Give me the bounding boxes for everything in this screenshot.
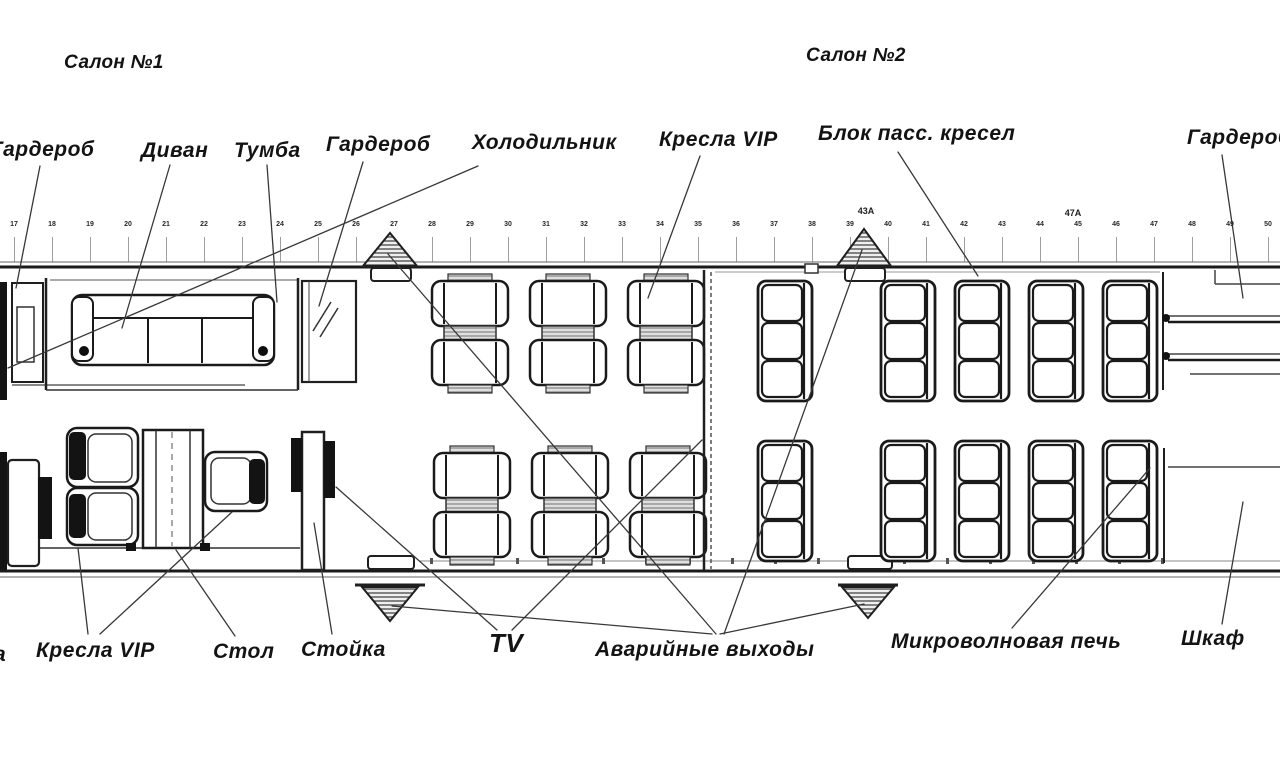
- frame-number: 36: [732, 221, 740, 228]
- label-wardrobe-rear: Гардероб: [1187, 126, 1280, 150]
- frame-number: 35: [694, 221, 702, 228]
- label-cupboard: Шкаф: [1181, 627, 1245, 651]
- frame-number: 44: [1036, 221, 1044, 228]
- frame-number: 23: [238, 221, 246, 228]
- label-emergency-exits: Аварийные выходы: [595, 638, 814, 662]
- frame-number: 45: [1074, 221, 1082, 228]
- label-wardrobe-2: Гардероб: [326, 133, 430, 157]
- frame-number: 22: [200, 221, 208, 228]
- frame-number: 32: [580, 221, 588, 228]
- frame-number-special: 43А: [858, 206, 875, 216]
- frame-number: 39: [846, 221, 854, 228]
- frame-number: 20: [124, 221, 132, 228]
- frame-number: 49: [1226, 221, 1234, 228]
- frame-number: 28: [428, 221, 436, 228]
- frame-number: 33: [618, 221, 626, 228]
- label-vip-seats-bottom: Кресла VIP: [36, 639, 155, 663]
- label-sofa: Диван: [141, 139, 208, 163]
- frame-number: 31: [542, 221, 550, 228]
- label-pax-seat-block: Блок пасс. кресел: [818, 122, 1015, 146]
- label-vip-seats-top: Кресла VIP: [659, 128, 778, 152]
- frame-number: 43: [998, 221, 1006, 228]
- frame-number: 38: [808, 221, 816, 228]
- label-left-fragment: а: [0, 643, 6, 667]
- frame-number: 41: [922, 221, 930, 228]
- frame-number: 18: [48, 221, 56, 228]
- label-cabinet: Тумба: [234, 139, 301, 163]
- frame-number: 50: [1264, 221, 1272, 228]
- frame-number: 46: [1112, 221, 1120, 228]
- frame-number: 29: [466, 221, 474, 228]
- cabin-layout-scan: Салон №1 Салон №2 Гардероб Диван Тумба Г…: [0, 0, 1280, 768]
- frame-number: 34: [656, 221, 664, 228]
- frame-number: 27: [390, 221, 398, 228]
- frame-number: 47: [1150, 221, 1158, 228]
- salon1-title: Салон №1: [64, 52, 164, 74]
- frame-number: 42: [960, 221, 968, 228]
- label-tv: TV: [489, 628, 523, 659]
- frame-number: 30: [504, 221, 512, 228]
- frame-number: 17: [10, 221, 18, 228]
- label-table: Стол: [213, 640, 274, 664]
- frame-number: 40: [884, 221, 892, 228]
- frame-number: 37: [770, 221, 778, 228]
- salon2-title: Салон №2: [806, 45, 906, 67]
- label-wardrobe-front: Гардероб: [0, 138, 94, 162]
- label-microwave: Микроволновая печь: [891, 630, 1121, 654]
- frame-number: 24: [276, 221, 284, 228]
- frame-number: 25: [314, 221, 322, 228]
- frame-number-special: 47А: [1065, 208, 1082, 218]
- label-refrigerator: Холодильник: [472, 131, 617, 155]
- frame-number: 19: [86, 221, 94, 228]
- frame-number: 48: [1188, 221, 1196, 228]
- frame-number: 26: [352, 221, 360, 228]
- label-counter: Стойка: [301, 638, 386, 662]
- frame-number: 21: [162, 221, 170, 228]
